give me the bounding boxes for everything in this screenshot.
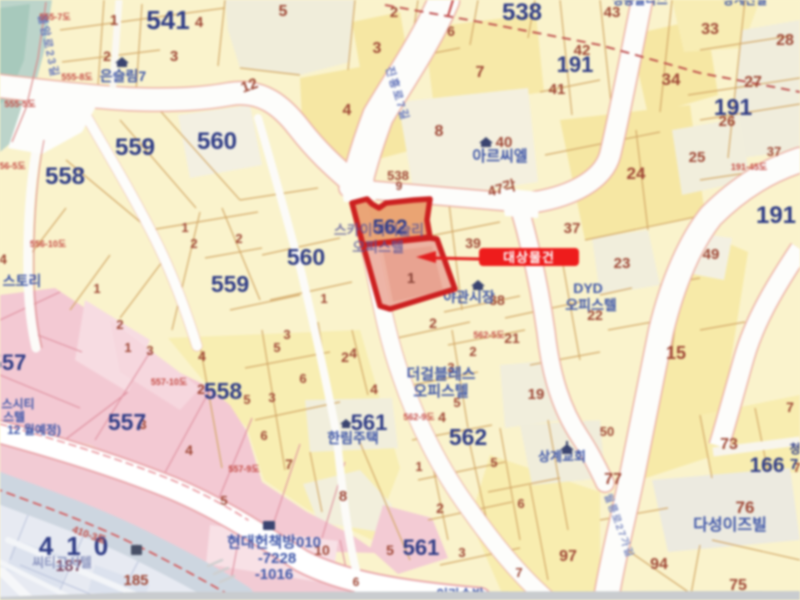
svg-text:스텔: 스텔 <box>3 410 25 424</box>
svg-text:스시티: 스시티 <box>1 396 34 411</box>
svg-text:560: 560 <box>197 128 237 155</box>
svg-text:아르씨엘: 아르씨엘 <box>472 148 527 165</box>
svg-text:4: 4 <box>349 345 357 361</box>
svg-text:15: 15 <box>666 343 686 363</box>
svg-text:4: 4 <box>195 14 204 31</box>
svg-text:25: 25 <box>689 149 706 166</box>
svg-text:97: 97 <box>559 548 577 565</box>
svg-text:562-9도: 562-9도 <box>403 412 435 422</box>
svg-text:556-10도: 556-10도 <box>30 239 67 249</box>
svg-text:7: 7 <box>476 64 485 81</box>
svg-text:555-5도: 555-5도 <box>4 99 36 109</box>
svg-text:대상물건: 대상물건 <box>503 250 555 265</box>
svg-text:스카이어씨슬리: 스카이어씨슬리 <box>334 222 424 238</box>
svg-text:오피스텔: 오피스텔 <box>565 297 617 313</box>
svg-text:7: 7 <box>515 565 522 580</box>
svg-text:오피스텔: 오피스텔 <box>352 239 404 255</box>
svg-text:7: 7 <box>786 399 794 415</box>
svg-text:1: 1 <box>407 270 415 287</box>
svg-text:4: 4 <box>370 381 378 397</box>
svg-text:1: 1 <box>415 459 422 474</box>
svg-text:상계산길: 상계산길 <box>723 0 767 7</box>
svg-text:191: 191 <box>756 202 796 229</box>
svg-text:541: 541 <box>146 5 189 35</box>
svg-text:은슬림7: 은슬림7 <box>100 68 147 84</box>
svg-text:562-5도: 562-5도 <box>473 330 505 340</box>
svg-text:39: 39 <box>465 235 481 251</box>
svg-text:현대헌책방010: 현대헌책방010 <box>227 533 321 551</box>
svg-text:73: 73 <box>720 436 738 453</box>
svg-text:33: 33 <box>701 21 719 38</box>
svg-text:37: 37 <box>767 144 781 159</box>
svg-text:2: 2 <box>190 236 197 251</box>
svg-text:77: 77 <box>604 471 622 488</box>
svg-text:24: 24 <box>627 164 646 183</box>
svg-text:5: 5 <box>273 340 280 355</box>
svg-text:1: 1 <box>93 281 100 296</box>
svg-text:1: 1 <box>320 291 327 306</box>
svg-text:3: 3 <box>146 343 153 358</box>
svg-text:562: 562 <box>449 424 487 450</box>
svg-text:5: 5 <box>220 493 227 508</box>
svg-text:49: 49 <box>703 246 720 263</box>
svg-text:41: 41 <box>549 81 566 98</box>
svg-text:4: 4 <box>343 102 352 119</box>
svg-text:5: 5 <box>243 392 250 407</box>
svg-text:다성이즈빌: 다성이즈빌 <box>693 516 767 534</box>
svg-text:3: 3 <box>170 48 178 65</box>
svg-text:76: 76 <box>736 498 755 517</box>
svg-text:정릉블라스: 정릉블라스 <box>612 0 667 7</box>
svg-text:한림주택: 한림주택 <box>327 430 379 446</box>
svg-text:2: 2 <box>103 48 111 64</box>
svg-text:557: 557 <box>0 350 26 375</box>
svg-text:8: 8 <box>435 123 444 140</box>
svg-text:2: 2 <box>429 315 437 331</box>
svg-text:557-10도: 557-10도 <box>151 377 188 387</box>
svg-text:555-7도: 555-7도 <box>39 12 71 22</box>
svg-text:6: 6 <box>517 496 524 511</box>
svg-text:557-9도: 557-9도 <box>228 464 260 474</box>
svg-text:1: 1 <box>110 12 118 29</box>
svg-text:50: 50 <box>600 424 614 439</box>
svg-text:555-8도: 555-8도 <box>61 72 93 82</box>
svg-text:2: 2 <box>390 4 398 21</box>
svg-text:559: 559 <box>115 134 155 161</box>
svg-text:166: 166 <box>749 454 784 477</box>
svg-text:27: 27 <box>744 74 762 91</box>
svg-text:5: 5 <box>279 3 288 20</box>
svg-text:556-5도: 556-5도 <box>0 161 26 171</box>
svg-text:4: 4 <box>185 442 193 458</box>
svg-text:191: 191 <box>557 52 594 77</box>
svg-text:씨티고시텔: 씨티고시텔 <box>32 555 92 570</box>
svg-text:3: 3 <box>283 327 290 342</box>
svg-text:2: 2 <box>436 500 444 516</box>
svg-text:538: 538 <box>502 0 542 26</box>
svg-text:23: 23 <box>614 255 631 272</box>
svg-text:4: 4 <box>198 348 206 364</box>
svg-text:5: 5 <box>386 542 394 558</box>
svg-text:6: 6 <box>447 23 455 39</box>
svg-text:3: 3 <box>373 40 382 57</box>
svg-text:559: 559 <box>211 271 249 297</box>
svg-text:34: 34 <box>662 70 681 89</box>
svg-text:-7228: -7228 <box>258 550 296 567</box>
svg-text:560: 560 <box>287 244 325 270</box>
svg-text:191-45도: 191-45도 <box>731 162 768 172</box>
svg-text:12 월예정): 12 월예정) <box>7 422 61 437</box>
svg-text:19: 19 <box>528 386 545 403</box>
svg-text:2: 2 <box>235 231 242 246</box>
svg-text:191: 191 <box>714 94 753 120</box>
svg-text:557: 557 <box>108 409 146 435</box>
svg-text:더걸블레스: 더걸블레스 <box>406 366 475 383</box>
svg-text:185: 185 <box>123 572 148 589</box>
svg-text:9: 9 <box>396 179 403 193</box>
svg-text:1: 1 <box>181 220 188 235</box>
svg-text:6: 6 <box>299 371 306 386</box>
svg-text:-1016: -1016 <box>255 566 293 583</box>
svg-text:4: 4 <box>0 251 7 267</box>
svg-text:DYD: DYD <box>573 280 603 296</box>
svg-text:7: 7 <box>790 456 798 473</box>
svg-text:94: 94 <box>650 556 668 573</box>
svg-text:3: 3 <box>458 545 465 560</box>
svg-text:558: 558 <box>45 163 85 190</box>
svg-text:2: 2 <box>341 349 349 365</box>
svg-text:6: 6 <box>260 428 267 443</box>
svg-text:청: 청 <box>789 441 800 456</box>
svg-text:5: 5 <box>490 455 497 470</box>
svg-text:21: 21 <box>504 330 520 346</box>
svg-text:2: 2 <box>469 344 476 359</box>
svg-text:8: 8 <box>339 488 347 505</box>
svg-text:스토리: 스토리 <box>3 273 42 289</box>
svg-text:2: 2 <box>116 317 123 332</box>
svg-text:561: 561 <box>403 535 440 560</box>
svg-text:7: 7 <box>285 456 293 472</box>
svg-text:28: 28 <box>776 32 794 49</box>
svg-text:37: 37 <box>564 220 581 237</box>
svg-text:6: 6 <box>353 575 360 589</box>
svg-text:3: 3 <box>268 390 275 405</box>
svg-text:558: 558 <box>204 378 243 404</box>
svg-text:4: 4 <box>438 409 446 425</box>
svg-text:1: 1 <box>124 340 131 355</box>
svg-text:오피스텔: 오피스텔 <box>413 382 468 400</box>
